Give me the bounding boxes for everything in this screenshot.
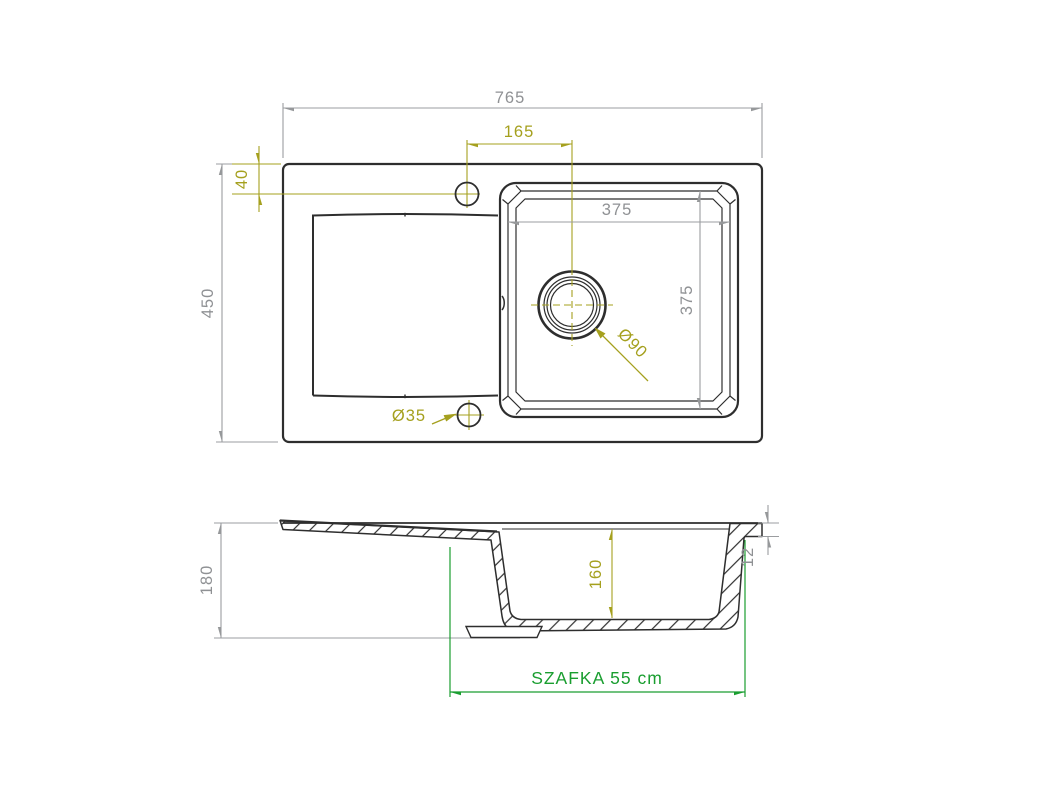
dim-bowl-width-label: 375 [602, 201, 633, 219]
dim-faucet-edge-offset-label: 40 [233, 169, 251, 189]
dim-overall-depth-label: 450 [199, 288, 217, 319]
dim-rim-height-label: 12 [739, 547, 757, 567]
sink-drawing-svg: 765 450 [0, 0, 1049, 810]
dim-faucet-to-drain-label: 165 [504, 123, 535, 141]
dim-total-height-label: 180 [198, 565, 216, 596]
dim-bowl-depth-label: 375 [678, 285, 696, 316]
dim-overall-depth [216, 164, 278, 442]
drain-outlet [466, 627, 542, 638]
accessory-hole-label: Ø35 [392, 407, 426, 425]
dim-bowl-inner-depth-label: 160 [587, 559, 605, 590]
section-view: 180 160 12 SZAFKA 55 cm [198, 505, 779, 697]
top-view: 765 450 [199, 89, 762, 442]
technical-drawing-canvas: 765 450 [0, 0, 1049, 810]
cabinet-dim-label: SZAFKA 55 cm [531, 668, 663, 688]
dim-overall-width-label: 765 [495, 89, 526, 107]
section-cut-material [280, 521, 762, 632]
